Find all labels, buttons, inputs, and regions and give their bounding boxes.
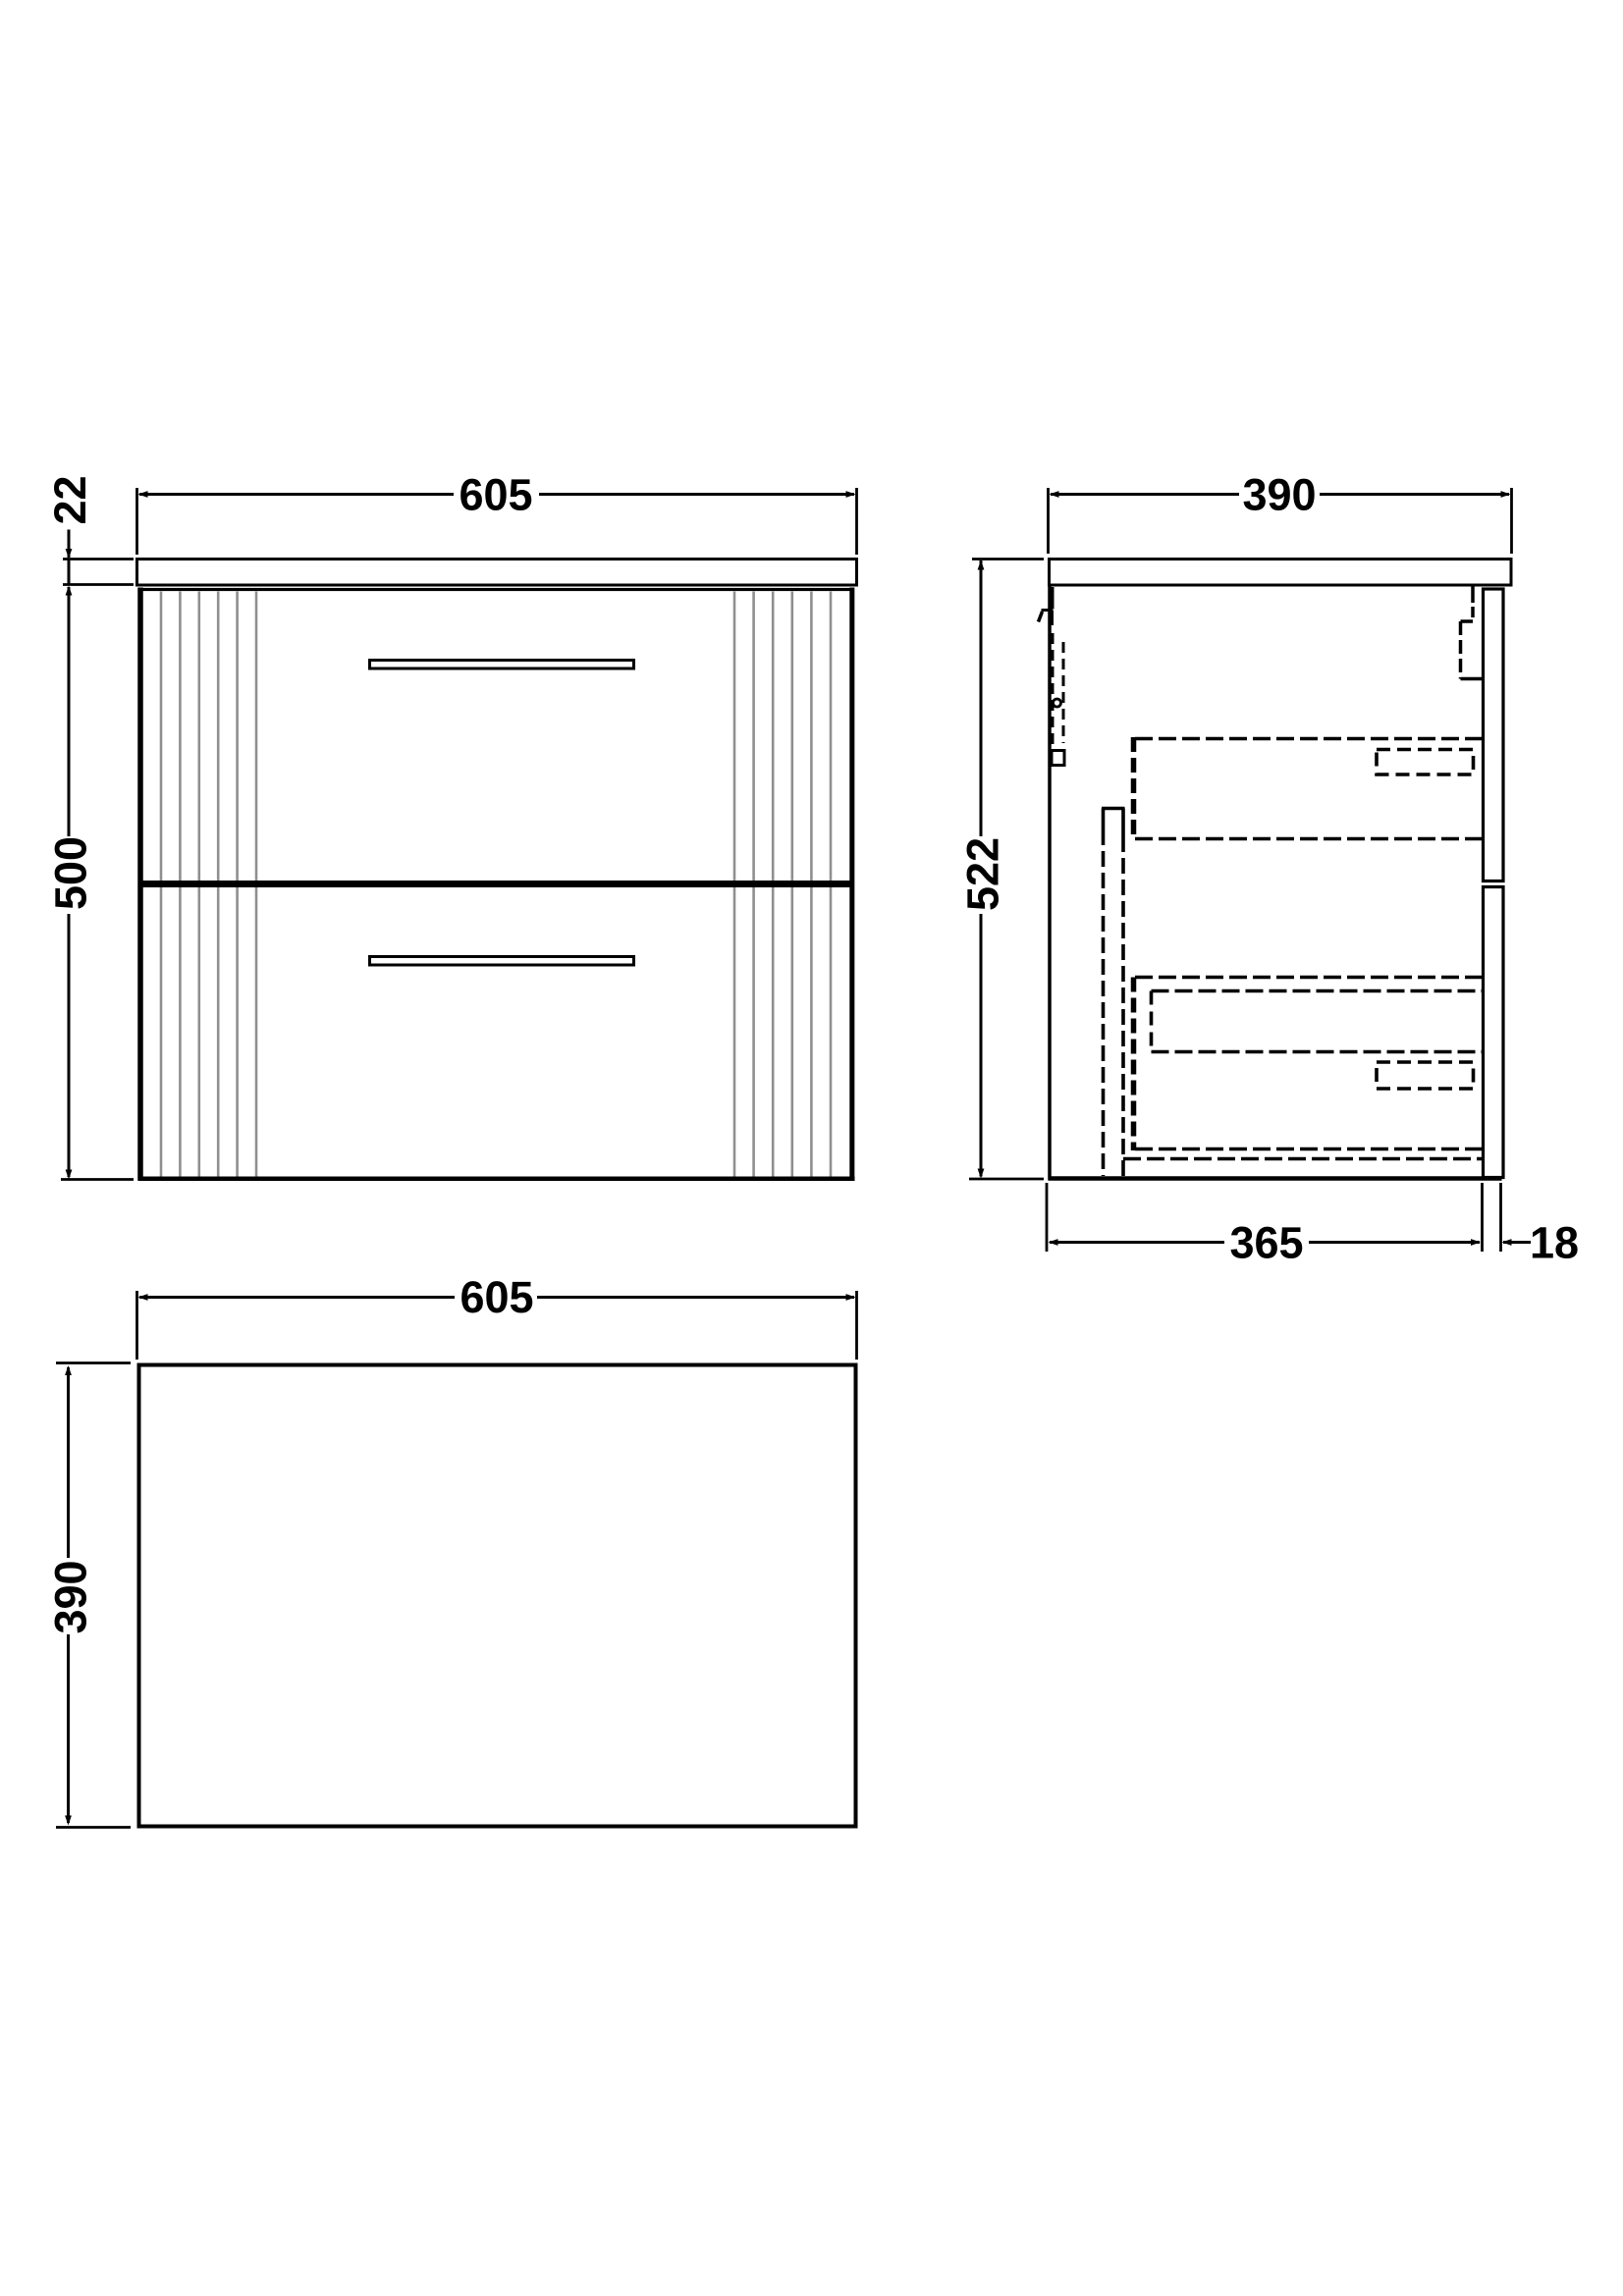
svg-text:18: 18 bbox=[1530, 1218, 1579, 1268]
svg-text:390: 390 bbox=[46, 1560, 96, 1633]
svg-text:605: 605 bbox=[460, 1272, 533, 1322]
svg-text:22: 22 bbox=[45, 475, 95, 524]
svg-text:500: 500 bbox=[46, 836, 96, 910]
svg-text:390: 390 bbox=[1242, 470, 1316, 520]
svg-text:522: 522 bbox=[958, 837, 1008, 911]
svg-text:605: 605 bbox=[459, 470, 532, 520]
svg-text:365: 365 bbox=[1229, 1218, 1303, 1268]
